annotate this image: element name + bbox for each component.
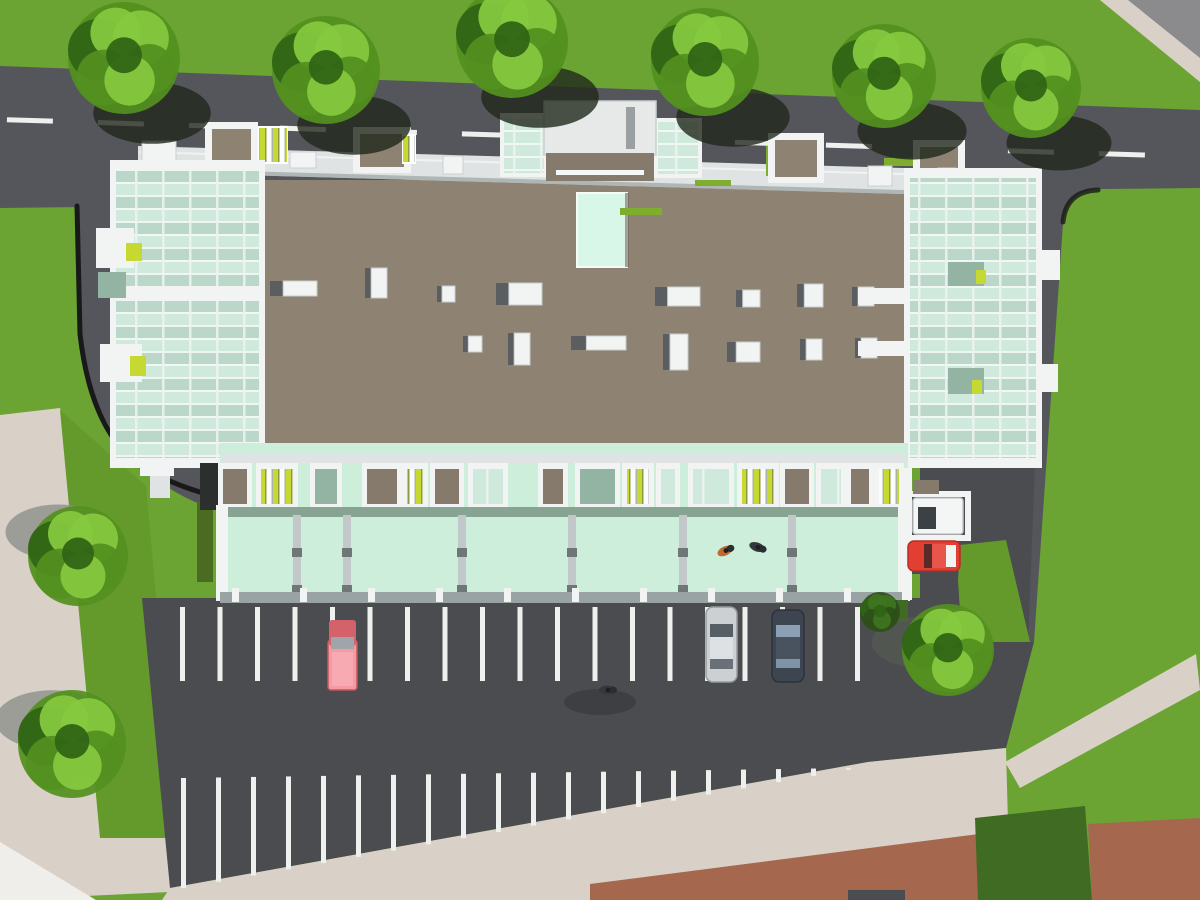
atrium-left-mullions-v	[116, 170, 259, 458]
beam-node	[342, 548, 352, 557]
canopy-post	[776, 588, 783, 602]
unit-shadow	[655, 287, 668, 306]
dark-car	[772, 610, 804, 682]
canopy-post	[708, 588, 715, 602]
pocket-column	[902, 468, 912, 600]
stripe-row1	[405, 607, 410, 681]
module-patio	[223, 469, 247, 504]
module-patio	[851, 469, 869, 504]
roof-unit	[736, 342, 760, 362]
canopy-post	[504, 588, 511, 602]
unit-shadow	[797, 284, 804, 307]
balcony-patio	[775, 140, 817, 177]
atrium-right-accent2	[972, 380, 982, 394]
scene-svg	[0, 0, 1200, 900]
stripe-row1	[443, 607, 448, 681]
roof-unit	[668, 287, 700, 306]
white-van	[913, 498, 963, 534]
beam-node	[567, 548, 577, 557]
stripe-row2	[811, 769, 816, 776]
stripe-row2	[391, 775, 396, 851]
pickup-truck	[328, 620, 357, 690]
module-slats	[742, 469, 774, 504]
unit-shadow	[852, 287, 858, 306]
canopy-post	[572, 588, 579, 602]
module-sage	[315, 469, 337, 504]
louver-slats	[403, 136, 415, 162]
module-dark	[200, 463, 218, 510]
stripe-row1	[368, 607, 373, 681]
roof-unit	[586, 336, 626, 350]
unit-shadow	[663, 334, 670, 370]
roof-unit	[670, 334, 688, 370]
module-sage	[580, 469, 615, 504]
module-glass-mullions	[821, 469, 841, 504]
unit-shadow	[571, 336, 586, 350]
module-slats	[879, 469, 899, 504]
roof-unit	[514, 333, 530, 365]
bush	[860, 592, 900, 632]
canopy-post	[368, 588, 375, 602]
stripe-row2	[251, 777, 256, 876]
stripe-row1	[480, 607, 485, 681]
bridge-1	[858, 288, 910, 304]
stripe-row2	[636, 771, 641, 807]
canopy-post	[232, 588, 239, 602]
roof-skylight	[577, 193, 627, 267]
atrium-left-cap2	[150, 476, 170, 498]
roof-unit	[371, 268, 387, 298]
stripe-row1	[180, 607, 185, 681]
stripe-row1	[630, 607, 635, 681]
pocket-wall	[913, 480, 939, 494]
canopy	[200, 443, 910, 603]
stripe-row1	[518, 607, 523, 681]
stripe-row2	[321, 776, 326, 863]
stripe-row2	[461, 774, 466, 838]
red-car	[908, 541, 960, 571]
roof-unit	[442, 286, 455, 302]
module-glass-mullions	[661, 469, 675, 504]
atrium-left-cap	[140, 458, 174, 476]
stripe-row1	[293, 607, 298, 681]
canopy-post	[640, 588, 647, 602]
atrium-right-accent1	[976, 270, 986, 284]
hedge-strip	[197, 502, 213, 582]
penthouse-vent	[626, 107, 635, 149]
stripe-row2	[216, 777, 221, 881]
roof-box	[142, 141, 176, 163]
terrace-walk-band	[222, 453, 906, 463]
canopy-south-band	[220, 592, 908, 603]
module-slats	[407, 469, 423, 504]
stripe-row2	[566, 772, 571, 819]
pavement-shadow	[564, 689, 636, 715]
module-patio	[785, 469, 809, 504]
stripe-row1	[743, 607, 748, 681]
beam-node	[457, 548, 467, 557]
bridge-2	[858, 341, 910, 356]
canopy-post	[844, 588, 851, 602]
stripe-row2	[181, 778, 186, 888]
asphalt-sliver	[848, 890, 905, 900]
canopy-post	[436, 588, 443, 602]
atrium-right-tab2	[1036, 364, 1058, 392]
atrium-left-accent2	[130, 356, 146, 376]
stripe-row2	[671, 771, 676, 801]
unit-shadow	[270, 281, 283, 296]
roof-unit	[468, 336, 482, 352]
roof-unit	[804, 284, 823, 307]
module-patio	[543, 469, 563, 504]
stripe-row2	[531, 773, 536, 826]
stripe-row2	[706, 770, 711, 794]
penthouse-ledge	[546, 153, 654, 181]
roof-unit	[509, 283, 542, 305]
unit-shadow	[496, 283, 509, 305]
beam-node	[678, 548, 688, 557]
stripe-row2	[356, 775, 361, 856]
module-glass-mullions	[693, 469, 729, 504]
atrium-right-tab1	[1036, 250, 1060, 280]
beam-node	[292, 548, 302, 557]
stripe-row1	[668, 607, 673, 681]
unit-shadow	[727, 342, 736, 362]
stripe-row2	[426, 774, 431, 844]
balcony-patio	[212, 129, 251, 160]
stripe-row1	[218, 607, 223, 681]
planter	[620, 208, 662, 215]
roof-unit	[806, 339, 822, 360]
roof-box	[443, 156, 463, 174]
louver-slats	[259, 128, 287, 162]
stripe-row1	[855, 607, 860, 681]
beam-node	[787, 548, 797, 557]
atrium-left-walk	[110, 286, 265, 301]
module-patio	[435, 469, 459, 504]
penthouse-lightbar	[556, 170, 644, 175]
lawn-shadow-patch	[975, 806, 1092, 900]
unit-shadow	[508, 333, 514, 365]
module-slats	[261, 469, 293, 504]
stripe-row1	[555, 607, 560, 681]
roof-box	[290, 152, 316, 168]
stripe-row2	[601, 772, 606, 814]
stripe-row1	[593, 607, 598, 681]
module-slats	[627, 469, 649, 504]
canopy-sage-strip	[222, 507, 905, 517]
stripe-row2	[846, 768, 851, 770]
atrium-left-accent1	[126, 243, 142, 261]
site-render	[0, 0, 1200, 900]
unit-shadow	[736, 290, 743, 307]
stripe-row2	[496, 773, 501, 832]
canopy-edge-left	[216, 505, 228, 601]
stripe-row2	[776, 769, 781, 782]
stripe-row2	[741, 770, 746, 789]
silver-car	[706, 607, 737, 682]
canopy-post	[300, 588, 307, 602]
module-patio	[367, 469, 397, 504]
stripe-row1	[255, 607, 260, 681]
module-glass-mullions	[473, 469, 503, 504]
atrium-right-mullions-v	[910, 178, 1036, 458]
unit-shadow	[365, 268, 371, 298]
roof-unit	[743, 290, 760, 307]
unit-shadow	[800, 339, 806, 360]
planter	[695, 180, 731, 186]
roof-skylight-shade	[625, 193, 629, 267]
terracotta-corner	[1088, 818, 1200, 900]
roof-box	[868, 166, 892, 186]
roof-unit	[283, 281, 317, 296]
stripe-row2	[286, 776, 291, 869]
person	[599, 686, 617, 695]
stripe-row1	[818, 607, 823, 681]
atrium-left-sagebox	[98, 272, 126, 298]
